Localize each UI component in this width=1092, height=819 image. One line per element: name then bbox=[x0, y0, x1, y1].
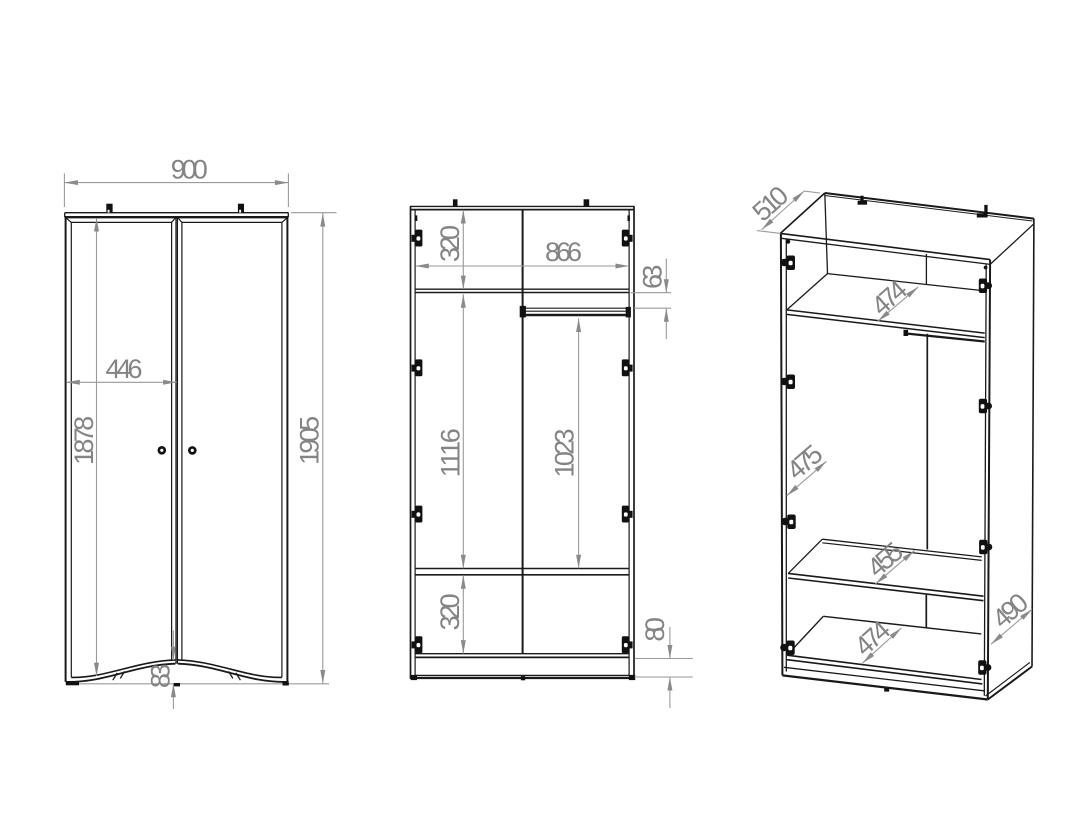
svg-text:1116: 1116 bbox=[435, 428, 465, 477]
svg-text:1905: 1905 bbox=[295, 416, 325, 465]
svg-text:474: 474 bbox=[849, 615, 897, 662]
svg-text:1023: 1023 bbox=[549, 429, 579, 478]
svg-text:455: 455 bbox=[861, 536, 909, 583]
svg-text:320: 320 bbox=[435, 593, 465, 630]
svg-text:490: 490 bbox=[986, 587, 1034, 634]
svg-text:1878: 1878 bbox=[69, 416, 99, 465]
svg-text:866: 866 bbox=[545, 237, 582, 267]
svg-text:446: 446 bbox=[106, 354, 143, 384]
svg-text:83: 83 bbox=[145, 664, 175, 689]
svg-text:474: 474 bbox=[866, 274, 914, 321]
svg-text:320: 320 bbox=[435, 225, 465, 262]
svg-text:475: 475 bbox=[781, 439, 829, 486]
svg-text:63: 63 bbox=[638, 265, 668, 290]
svg-text:510: 510 bbox=[747, 180, 795, 227]
svg-text:80: 80 bbox=[640, 617, 670, 642]
svg-text:900: 900 bbox=[171, 155, 208, 185]
